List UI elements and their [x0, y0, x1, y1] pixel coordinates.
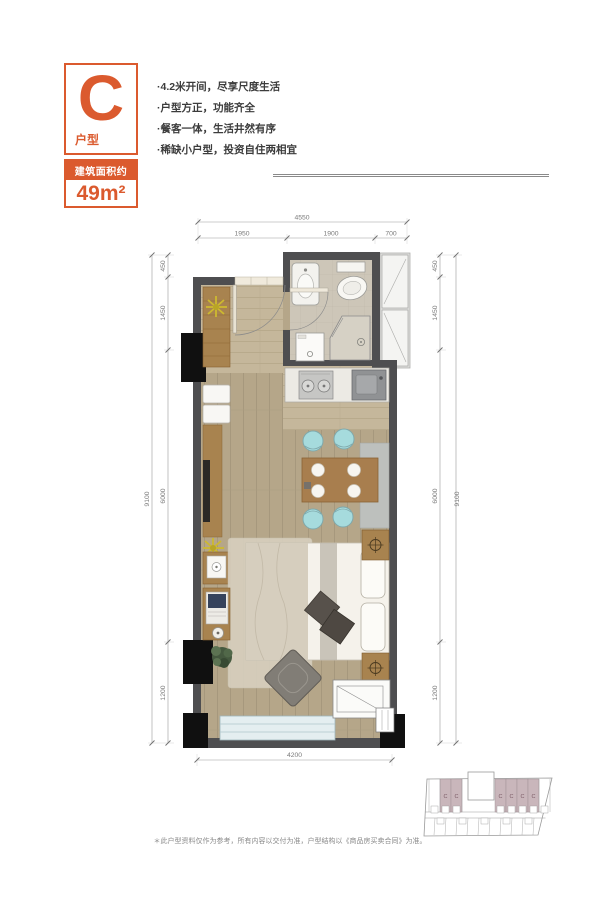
dining-chair	[334, 429, 354, 449]
unit-letter: C	[66, 59, 136, 137]
dim-label: 450	[160, 260, 167, 272]
stove-icon	[299, 371, 333, 399]
tv-icon	[203, 460, 210, 522]
unit-cell-label: C	[455, 794, 459, 800]
floorplan-page: C 户型 建筑面积约 49m² ·4.2米开间，尽享尺度生活 ·户型方正，功能齐…	[0, 0, 600, 900]
double-rule-divider	[273, 174, 549, 177]
core-block	[468, 772, 494, 800]
nightstand	[362, 653, 389, 683]
headboard-pillow	[361, 603, 385, 651]
dim-label: 6000	[432, 488, 439, 503]
area-value: 49m²	[66, 180, 136, 208]
unit-cell-label: C	[499, 794, 503, 800]
wall-top-left	[193, 277, 235, 285]
dim-label: 1950	[234, 231, 249, 238]
bathroom-door-leaf	[290, 288, 328, 292]
key-plan: C C C C C C	[415, 762, 590, 847]
appliance-box	[203, 405, 230, 423]
dim-label: 450	[432, 260, 439, 272]
dim-label: 1450	[160, 305, 167, 320]
dining-chair	[333, 507, 353, 527]
dim-label: 1450	[432, 305, 439, 320]
dim-label: 9100	[454, 491, 461, 506]
unit-cell-label: C	[521, 794, 525, 800]
unit-cell-label: C	[510, 794, 514, 800]
window-strip	[220, 716, 335, 740]
unit-type-label: 户型	[75, 131, 99, 148]
dim-label: 1900	[323, 231, 338, 238]
area-caption: 建筑面积约	[66, 161, 136, 180]
dim-label: 1200	[432, 685, 439, 700]
selling-points: ·4.2米开间，尽享尺度生活 ·户型方正，功能齐全 ·餐客一体，生活井然有序 ·…	[157, 77, 297, 161]
kitchen-sink-icon	[352, 370, 386, 400]
dining-chair	[303, 431, 323, 451]
wall-bath-east	[372, 252, 380, 368]
dim-label: 1200	[160, 685, 167, 700]
nightstand	[362, 530, 389, 560]
selling-point: ·4.2米开间，尽享尺度生活	[157, 77, 297, 98]
dim-label: 9100	[144, 491, 151, 506]
appliance-box	[203, 385, 230, 403]
entry-furniture	[203, 287, 230, 423]
selling-point: ·稀缺小户型，投资自住两相宜	[157, 140, 297, 161]
selling-point: ·餐客一体，生活井然有序	[157, 119, 297, 140]
corner-block	[183, 713, 208, 748]
desk	[203, 588, 230, 640]
wall-bath-north	[283, 252, 380, 260]
dim-label: 6000	[160, 488, 167, 503]
dining-chair	[303, 509, 323, 529]
dim-label: 4200	[287, 752, 302, 759]
disclaimer-text: ＊此户型资料仅作为参考，所有内容以交付为准，户型结构以《商品房买卖合同》为准。	[150, 836, 430, 846]
kitchen	[285, 368, 389, 402]
unit-cell-label: C	[532, 794, 536, 800]
unit-cell-label: C	[444, 794, 448, 800]
selling-point: ·户型方正，功能齐全	[157, 98, 297, 119]
washer-icon	[296, 333, 324, 361]
shaft-block	[181, 333, 206, 382]
shaft-block	[183, 640, 213, 684]
toilet-tank	[337, 262, 365, 272]
entry-door-leaf	[233, 285, 237, 333]
unit-type-badge: C 户型	[64, 63, 138, 155]
wall-connector	[380, 360, 397, 368]
dim-label: 700	[385, 231, 397, 238]
wall-bath-west	[283, 260, 290, 292]
dim-label: 4550	[294, 215, 309, 222]
floor-plan: 4550 1950 1900 700 9100 450 1450 6000 12…	[140, 210, 470, 770]
drain-unit	[376, 708, 394, 732]
area-badge: 建筑面积约 49m²	[64, 159, 138, 208]
ac-platform-top	[380, 253, 410, 368]
